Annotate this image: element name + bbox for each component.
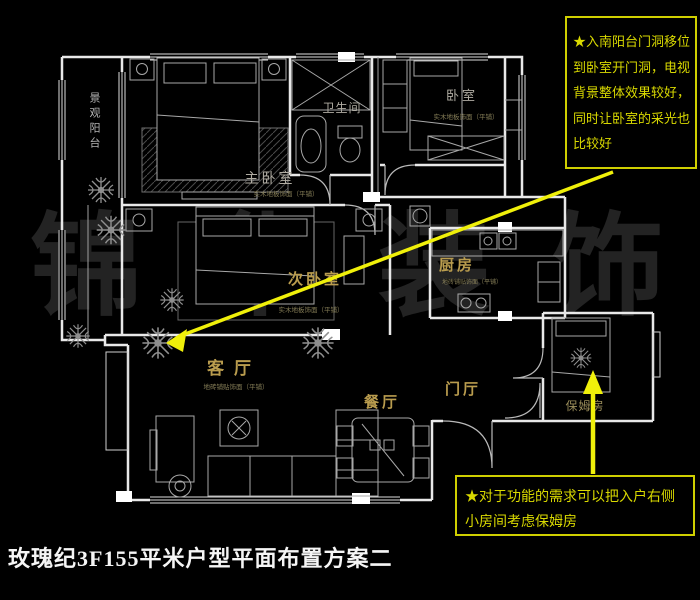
furniture xyxy=(126,58,610,497)
arrow-bottom-note-head xyxy=(583,370,603,394)
room-label-kitchen: 厨房 xyxy=(439,256,475,274)
room-label-balcony: 景观阳台 xyxy=(86,92,102,152)
room-label-bathroom: 卫生间 xyxy=(322,101,361,115)
room-label-bedroom: 卧室 xyxy=(446,88,478,103)
plant-icon xyxy=(88,177,114,203)
floor-note-living-room: 地砖铺贴饰面（平铺） xyxy=(204,382,269,391)
room-label-dining-room: 餐厅 xyxy=(364,393,400,411)
page-title: 玫瑰纪3F155平米户型平面布置方案二 xyxy=(8,541,392,573)
floor-note-second-bedroom: 实木地板饰面（平铺） xyxy=(279,305,344,314)
plant-icon xyxy=(160,288,183,311)
floor-note-master-bedroom: 实木地板饰面（平铺） xyxy=(254,189,319,198)
floor-note-kitchen: 地砖铺贴饰面（平铺） xyxy=(442,278,502,286)
annotation-box-bottom: ★对于功能的需求可以把入户右侧小房间考虑保姆房 xyxy=(455,475,695,536)
room-label-foyer: 门厅 xyxy=(445,380,481,398)
room-label-master-bedroom: 主卧室 xyxy=(245,170,296,186)
screenshot-stage: 锦华装饰 xyxy=(0,0,700,600)
floor-note-bedroom: 实木地板饰面（平铺） xyxy=(434,112,499,121)
annotation-box-top: ★入南阳台门洞移位到卧室开门洞，电视背景整体效果较好，同时让卧室的采光也比较好 xyxy=(565,16,697,169)
plant-icon xyxy=(66,324,89,347)
plant-icon xyxy=(571,348,592,369)
room-label-nanny-room: 保姆房 xyxy=(565,398,604,413)
room-label-living-room: 客厅 xyxy=(206,358,261,378)
